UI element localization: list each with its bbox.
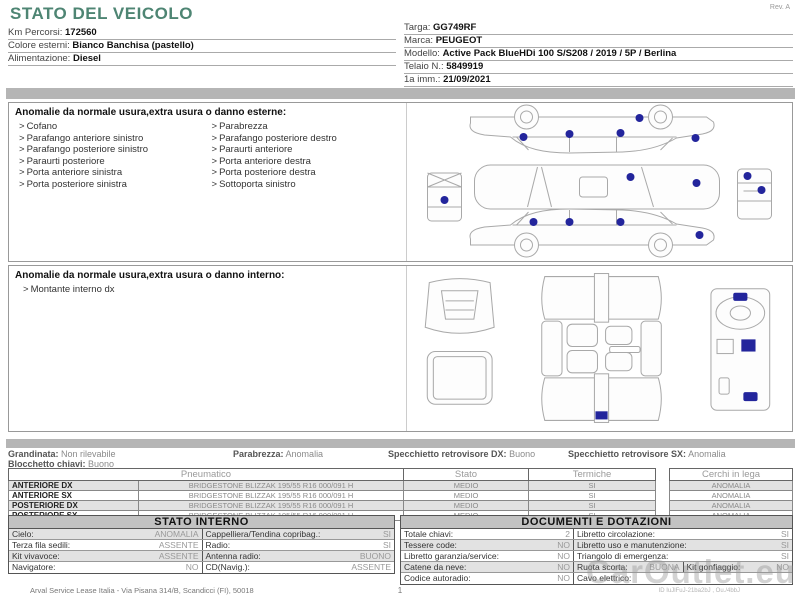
plate-row: Targa: GG749RF — [404, 22, 793, 35]
alloy-wheels-table: Cerchi in lega ANOMALIA ANOMALIA ANOMALI… — [669, 468, 793, 521]
bullet: > — [19, 156, 25, 167]
field-label: Radio: — [206, 540, 383, 550]
field-value: NO — [557, 562, 570, 572]
anomaly-label: Parafango posteriore destro — [219, 133, 337, 144]
vehicle-info-right: Targa: GG749RF Marca: PEUGEOT Modello: A… — [404, 22, 793, 87]
cerchi-value: ANOMALIA — [670, 501, 793, 511]
stato-interno-section: STATO INTERNO Cielo:ANOMALIA Cappelliera… — [8, 515, 395, 574]
field-label: Cavo elettrico: — [577, 573, 789, 584]
tire-spec: BRIDGESTONE BLIZZAK 195/55 R16 000/091 H — [139, 481, 404, 491]
bullet: > — [19, 179, 25, 190]
tire-state: MEDIO — [404, 501, 529, 511]
documenti-row: Catene da neve:NO Ruota scorta:BUONA Kit… — [401, 562, 792, 573]
bullet: > — [19, 167, 25, 178]
tire-row: ANTERIORE SX BRIDGESTONE BLIZZAK 195/55 … — [9, 491, 656, 501]
chassis-row: Telaio N.: 5849919 — [404, 61, 793, 74]
anomaly-label: Parafango anteriore sinistro — [27, 133, 144, 144]
registration-row: 1a imm.: 21/09/2021 — [404, 74, 793, 87]
field-label: Totale chiavi: — [404, 529, 565, 539]
color-label: Colore esterni: — [8, 40, 70, 51]
anomaly-item: >Parafango posteriore sinistro — [15, 144, 208, 156]
anomaly-item: >Porta anteriore sinistra — [15, 167, 208, 179]
tire-tables: Pneumatico Stato Termiche ANTERIORE DX B… — [8, 468, 793, 521]
field-value: ANOMALIA — [155, 529, 199, 539]
pneumatico-header: Pneumatico — [9, 469, 404, 481]
tire-state: MEDIO — [404, 491, 529, 501]
km-value: 172560 — [65, 27, 97, 38]
field-label: Kit vivavoce: — [12, 551, 159, 561]
vehicle-info-left: Km Percorsi: 172560 Colore esterni: Bian… — [8, 27, 396, 66]
damage-markers — [595, 411, 607, 419]
field-value: 2 — [565, 529, 570, 539]
cerchi-value: ANOMALIA — [670, 481, 793, 491]
stato-interno-row: Navigatore:NO CD(Navig.):ASSENTE — [9, 562, 394, 573]
field-label: Terza fila sedili: — [12, 540, 159, 550]
anomaly-item: >Porta posteriore sinistra — [15, 179, 208, 191]
stato-interno-row: Kit vivavoce:ASSENTE Antenna radio:BUONO — [9, 551, 394, 562]
exterior-damage-diagram — [407, 103, 792, 261]
field-value: ASSENTE — [159, 540, 199, 550]
anomaly-label: Cofano — [27, 121, 58, 132]
model-label: Modello: — [404, 48, 440, 59]
field-value: SI — [383, 529, 391, 539]
bullet: > — [19, 121, 25, 132]
field-value: ASSENTE — [351, 562, 391, 573]
field-value: SI — [781, 540, 789, 550]
tire-winter: SI — [529, 491, 656, 501]
field-value: NO — [776, 562, 789, 572]
exterior-anomalies-col2: >Parabrezza >Parafango posteriore destro… — [208, 121, 401, 190]
footer-id-code: ID IuJlFuJ-21ba2bJ , Ou./4bbJ — [659, 588, 740, 594]
bullet: > — [212, 179, 218, 190]
field-label: CD(Navig.): — [206, 562, 352, 573]
page-title: STATO DEL VEICOLO — [10, 4, 193, 24]
km-label: Km Percorsi: — [8, 27, 62, 38]
exterior-anomalies-col1: >Cofano >Parafango anteriore sinistro >P… — [15, 121, 208, 190]
stato-header: Stato — [404, 469, 529, 481]
mirror-sx-status: Specchietto retrovisore SX: Anomalia — [568, 449, 726, 459]
field-label: Libretto circolazione: — [577, 529, 781, 539]
grandinata-status: Grandinata: Non rilevabile — [8, 449, 233, 459]
km-row: Km Percorsi: 172560 — [8, 27, 396, 40]
field-value: SI — [781, 551, 789, 561]
field-value: BUONA — [649, 562, 679, 572]
interior-damage-diagram — [407, 266, 792, 431]
status-summary: Grandinata: Non rilevabile Parabrezza: A… — [8, 449, 793, 469]
documenti-row: Tessere code:NO Libretto uso e manutenzi… — [401, 540, 792, 551]
field-label: Antenna radio: — [206, 551, 360, 561]
tire-header-row: Pneumatico Stato Termiche — [9, 469, 656, 481]
registration-label: 1a imm.: — [404, 74, 440, 85]
bullet: > — [212, 167, 218, 178]
parabrezza-status: Parabrezza: Anomalia — [233, 449, 388, 459]
divider-bar-top — [6, 88, 795, 99]
field-value: NO — [557, 540, 570, 550]
field-label: Cappelliera/Tendina copribag.: — [206, 529, 383, 539]
anomaly-item: >Porta anteriore destra — [208, 156, 401, 168]
stato-interno-row: Terza fila sedili:ASSENTE Radio:SI — [9, 540, 394, 551]
tire-spec: BRIDGESTONE BLIZZAK 195/55 R16 000/091 H — [139, 491, 404, 501]
field-label: Navigatore: — [12, 562, 186, 573]
tire-state: MEDIO — [404, 481, 529, 491]
field-value: NO — [557, 573, 570, 584]
tire-table: Pneumatico Stato Termiche ANTERIORE DX B… — [8, 468, 656, 521]
cerchi-row: ANOMALIA — [670, 491, 793, 501]
field-label: Cielo: — [12, 529, 155, 539]
anomaly-label: Porta anteriore destra — [219, 156, 311, 167]
divider-bar-bottom — [6, 439, 795, 448]
anomaly-label: Parabrezza — [219, 121, 268, 132]
documenti-row: Totale chiavi:2 Libretto circolazione:SI — [401, 529, 792, 540]
stato-interno-row: Cielo:ANOMALIA Cappelliera/Tendina copri… — [9, 529, 394, 540]
exterior-diagram-panel — [407, 103, 792, 261]
parabrezza-label: Parabrezza: — [233, 449, 284, 459]
field-label: Ruota scorta: — [577, 562, 649, 572]
tire-position: ANTERIORE SX — [9, 491, 139, 501]
field-label: Triangolo di emergenza: — [577, 551, 781, 561]
anomaly-item: >Cofano — [15, 121, 208, 133]
bullet: > — [19, 144, 25, 155]
field-value: SI — [383, 540, 391, 550]
color-row: Colore esterni: Bianco Banchisa (pastell… — [8, 40, 396, 53]
bullet: > — [212, 156, 218, 167]
field-value: BUONO — [360, 551, 391, 561]
field-label: Tessere code: — [404, 540, 557, 550]
anomaly-label: Sottoporta sinistro — [219, 179, 296, 190]
interior-anomalies-header: Anomalie da normale usura,extra usura o … — [15, 270, 400, 281]
anomaly-item: >Parafango posteriore destro — [208, 133, 401, 145]
bullet: > — [212, 133, 218, 144]
fuel-row: Alimentazione: Diesel — [8, 53, 396, 66]
vehicle-report-page: STATO DEL VEICOLO Rev. A Km Percorsi: 17… — [0, 0, 800, 600]
brand-row: Marca: PEUGEOT — [404, 35, 793, 48]
bullet: > — [212, 121, 218, 132]
tire-row: POSTERIORE DX BRIDGESTONE BLIZZAK 195/55… — [9, 501, 656, 511]
interior-diagram-panel — [407, 266, 792, 431]
revision-label: Rev. A — [770, 4, 790, 11]
tire-position: POSTERIORE DX — [9, 501, 139, 511]
anomaly-item: >Parabrezza — [208, 121, 401, 133]
exterior-anomalies-list: Anomalie da normale usura,extra usura o … — [9, 103, 407, 261]
interior-anomalies-list: Anomalie da normale usura,extra usura o … — [9, 266, 407, 431]
cerchi-row: ANOMALIA — [670, 501, 793, 511]
documenti-row: Libretto garanzia/service:NO Triangolo d… — [401, 551, 792, 562]
anomaly-item: >Paraurti posteriore — [15, 156, 208, 168]
model-value: Active Pack BlueHDi 100 S/S208 / 2019 / … — [443, 48, 677, 59]
anomaly-item: >Montante interno dx — [19, 284, 400, 296]
field-value: SI — [781, 529, 789, 539]
brand-value: PEUGEOT — [436, 35, 482, 46]
mirror-dx-label: Specchietto retrovisore DX: — [388, 449, 507, 459]
interior-anomalies-box: Anomalie da normale usura,extra usura o … — [8, 265, 793, 432]
termiche-header: Termiche — [529, 469, 656, 481]
tire-winter: SI — [529, 481, 656, 491]
exterior-anomalies-box: Anomalie da normale usura,extra usura o … — [8, 102, 793, 262]
documenti-title: DOCUMENTI E DOTAZIONI — [401, 516, 792, 529]
color-value: Bianco Banchisa (pastello) — [72, 40, 193, 51]
stato-interno-title: STATO INTERNO — [9, 516, 394, 529]
cerchi-value: ANOMALIA — [670, 491, 793, 501]
field-label: Kit gonfiaggio: — [687, 562, 777, 572]
anomaly-label: Porta anteriore sinistra — [27, 167, 123, 178]
fuel-label: Alimentazione: — [8, 53, 70, 64]
tire-winter: SI — [529, 501, 656, 511]
tire-spec: BRIDGESTONE BLIZZAK 195/55 R16 000/091 H — [139, 501, 404, 511]
field-value: NO — [186, 562, 199, 573]
mirror-dx-value: Buono — [509, 449, 535, 459]
anomaly-item: >Sottoporta sinistro — [208, 179, 401, 191]
fuel-value: Diesel — [73, 53, 101, 64]
anomaly-label: Paraurti anteriore — [219, 144, 292, 155]
chassis-label: Telaio N.: — [404, 61, 444, 72]
documenti-section: DOCUMENTI E DOTAZIONI Totale chiavi:2 Li… — [400, 515, 793, 585]
plate-value: GG749RF — [433, 22, 476, 33]
chassis-value: 5849919 — [446, 61, 483, 72]
anomaly-label: Montante interno dx — [31, 284, 115, 295]
bullet: > — [19, 133, 25, 144]
anomaly-label: Porta posteriore destra — [219, 167, 316, 178]
grandinata-label: Grandinata: — [8, 449, 59, 459]
anomaly-label: Porta posteriore sinistra — [27, 179, 127, 190]
exterior-anomalies-header: Anomalie da normale usura,extra usura o … — [15, 107, 400, 118]
cerchi-header: Cerchi in lega — [670, 469, 793, 481]
field-label: Libretto garanzia/service: — [404, 551, 557, 561]
anomaly-item: >Porta posteriore destra — [208, 167, 401, 179]
parabrezza-value: Anomalia — [286, 449, 324, 459]
documenti-row: Codice autoradio:NO Cavo elettrico: — [401, 573, 792, 584]
field-value: ASSENTE — [159, 551, 199, 561]
grandinata-value: Non rilevabile — [61, 449, 116, 459]
registration-value: 21/09/2021 — [443, 74, 491, 85]
brand-label: Marca: — [404, 35, 433, 46]
bullet: > — [212, 144, 218, 155]
field-value: NO — [557, 551, 570, 561]
plate-label: Targa: — [404, 22, 430, 33]
model-row: Modello: Active Pack BlueHDi 100 S/S208 … — [404, 48, 793, 61]
field-label: Libretto uso e manutenzione: — [577, 540, 781, 550]
mirror-sx-label: Specchietto retrovisore SX: — [568, 449, 686, 459]
mirror-dx-status: Specchietto retrovisore DX: Buono — [388, 449, 568, 459]
mirror-sx-value: Anomalia — [688, 449, 726, 459]
tire-row: ANTERIORE DX BRIDGESTONE BLIZZAK 195/55 … — [9, 481, 656, 491]
bullet: > — [23, 284, 29, 295]
anomaly-item: >Paraurti anteriore — [208, 144, 401, 156]
anomaly-item: >Parafango anteriore sinistro — [15, 133, 208, 145]
field-label: Codice autoradio: — [404, 573, 557, 584]
field-label: Catene da neve: — [404, 562, 557, 572]
anomaly-label: Paraurti posteriore — [27, 156, 105, 167]
cerchi-row: ANOMALIA — [670, 481, 793, 491]
tire-position: ANTERIORE DX — [9, 481, 139, 491]
anomaly-label: Parafango posteriore sinistro — [27, 144, 148, 155]
